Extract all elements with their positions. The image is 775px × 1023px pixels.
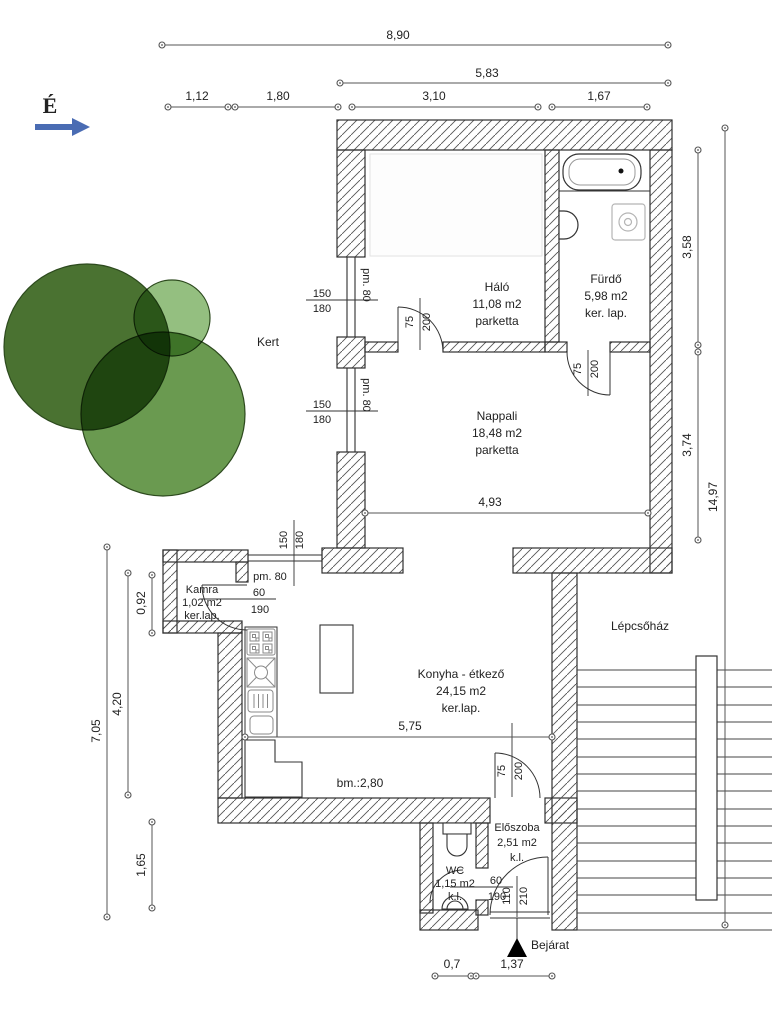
svg-text:ker. lap.: ker. lap. [585, 306, 627, 320]
svg-text:150: 150 [313, 399, 331, 411]
wall-mid-c [545, 342, 567, 352]
dim-bottom-seg1: 0,7 [444, 957, 461, 971]
svg-text:parketta: parketta [475, 443, 519, 457]
wall-foot-right [513, 548, 672, 573]
svg-text:75: 75 [404, 316, 416, 328]
svg-text:k.l.: k.l. [448, 891, 462, 903]
wall-staircase [552, 573, 577, 930]
tree-mid [81, 332, 245, 496]
room-label-wc: WC 1,15 m2 k.l. [435, 865, 475, 903]
window-label-halo: 150 180 pm. 80 [306, 268, 378, 315]
svg-text:180: 180 [294, 531, 306, 549]
wall-bath-divider [545, 150, 559, 342]
dim-left-konyha: 4,20 [110, 692, 124, 716]
svg-text:5,98 m2: 5,98 m2 [584, 289, 628, 303]
stove-icon [247, 629, 275, 655]
wall-kamra-top [163, 550, 248, 562]
svg-text:110: 110 [501, 887, 513, 905]
dim-left-total: 7,05 [89, 719, 103, 743]
svg-text:24,15 m2: 24,15 m2 [436, 684, 486, 698]
toilet-icon [443, 823, 471, 856]
washbasin-icon [559, 211, 578, 239]
svg-text:WC: WC [446, 865, 464, 877]
svg-text:pm. 80: pm. 80 [253, 571, 287, 583]
dim-konyha-note: bm.:2,80 [337, 776, 384, 790]
dim-right-furdo: 3,58 [680, 235, 694, 259]
dim-right-nappali: 3,74 [680, 433, 694, 457]
svg-text:parketta: parketta [475, 314, 519, 328]
dim-left-kamra: 0,92 [134, 591, 148, 615]
svg-text:ker.lap.: ker.lap. [184, 610, 219, 622]
svg-text:Háló: Háló [485, 280, 510, 294]
dishwasher-icon [248, 690, 273, 712]
door-label-entrance: 110 210 [501, 876, 530, 917]
svg-text:150: 150 [313, 288, 331, 300]
door-label-halo: 75 200 [404, 298, 433, 350]
dim-top-seg3: 3,10 [422, 89, 446, 103]
svg-text:150: 150 [278, 531, 290, 549]
door-label-furdo: 75 200 [572, 350, 601, 396]
room-label-kamra: Kamra 1,02 m2 ker.lap. [182, 584, 222, 622]
svg-text:2,51 m2: 2,51 m2 [497, 837, 537, 849]
dim-top-total: 8,90 [386, 28, 410, 42]
dim-top-seg2: 1,80 [266, 89, 290, 103]
garden-label: Kert [257, 335, 280, 349]
svg-text:75: 75 [496, 765, 508, 777]
dim-top-seg4: 1,67 [587, 89, 611, 103]
dim-bottom-seg2: 1,37 [500, 957, 524, 971]
wall-mid-a [365, 342, 398, 352]
window-label-kitchen: 150 180 pm. 80 [253, 520, 306, 586]
wall-foot-left [322, 548, 403, 573]
svg-text:75: 75 [572, 363, 584, 375]
svg-text:200: 200 [589, 360, 601, 378]
wall-left-mid [337, 337, 365, 368]
dim-top-seg1: 1,12 [185, 89, 209, 103]
floorplan-page: Kert É [0, 0, 775, 1023]
svg-text:Előszoba: Előszoba [494, 822, 540, 834]
compass-arrow-icon [35, 118, 90, 136]
svg-text:Fürdő: Fürdő [590, 272, 622, 286]
wall-kitchen-bottom [218, 798, 490, 823]
wall-right [650, 150, 672, 573]
kitchen-counter [245, 627, 277, 737]
dim-top-wing: 5,83 [475, 66, 499, 80]
svg-text:k.l.: k.l. [510, 852, 524, 864]
wall-wc-hall-bottom [476, 900, 488, 915]
bathtub-drain [619, 169, 624, 174]
wall-top [337, 120, 672, 150]
staircase [577, 656, 772, 930]
wall-kitchen-left [218, 633, 242, 798]
svg-text:ker.lap.: ker.lap. [442, 701, 481, 715]
door-label-konyha: 75 200 [496, 723, 525, 797]
svg-text:200: 200 [513, 762, 525, 780]
svg-text:Konyha - étkező: Konyha - étkező [418, 667, 505, 681]
room-label-furdo: Fürdő 5,98 m2 ker. lap. [584, 272, 628, 320]
dim-nappali-width: 4,93 [478, 495, 502, 509]
compass: É [35, 93, 90, 136]
bed [370, 154, 542, 256]
dim-konyha-width: 5,75 [398, 719, 422, 733]
bathtub-inner [569, 159, 635, 185]
room-label-konyha: Konyha - étkező 24,15 m2 ker.lap. [418, 667, 505, 715]
washing-machine-icon [612, 204, 645, 240]
svg-text:60: 60 [490, 875, 502, 887]
svg-text:18,48 m2: 18,48 m2 [472, 426, 522, 440]
dim-right-total: 14,97 [706, 482, 720, 512]
counter-l-shape [245, 740, 302, 797]
entrance-label: Bejárat [531, 938, 570, 952]
svg-text:190: 190 [251, 604, 269, 616]
room-label-halo: Háló 11,08 m2 parketta [472, 280, 521, 328]
svg-text:Nappali: Nappali [477, 409, 518, 423]
wall-mid-b [443, 342, 545, 352]
svg-text:1,15 m2: 1,15 m2 [435, 878, 475, 890]
stair-rail [696, 656, 717, 900]
svg-text:60: 60 [253, 587, 265, 599]
svg-text:pm. 80: pm. 80 [360, 268, 372, 302]
svg-text:210: 210 [518, 887, 530, 905]
sink-icon [247, 658, 275, 687]
svg-text:180: 180 [313, 414, 331, 426]
kitchen-island [320, 625, 353, 693]
wall-wc-hall-top [476, 823, 488, 868]
fridge-icon [250, 716, 273, 734]
garden-trees [4, 264, 245, 496]
wall-left-top [337, 150, 365, 257]
dim-left-wc: 1,65 [134, 853, 148, 877]
entrance-triangle-icon [507, 938, 527, 957]
wall-left-low [337, 452, 365, 548]
svg-text:Kamra: Kamra [186, 584, 219, 596]
wall-mid-d [610, 342, 650, 352]
wall-kamra-right-stub [236, 562, 248, 582]
svg-text:pm. 80: pm. 80 [360, 378, 372, 412]
svg-text:200: 200 [421, 313, 433, 331]
compass-north-label: É [43, 93, 58, 118]
floorplan-drawing: Kert É [0, 0, 775, 1023]
svg-text:11,08 m2: 11,08 m2 [472, 297, 521, 311]
wall-wc-left [420, 823, 433, 913]
wall-wc-bottom [420, 910, 478, 930]
room-label-nappali: Nappali 18,48 m2 parketta [472, 409, 522, 457]
window-label-nappali: 150 180 pm. 80 [306, 378, 378, 426]
room-label-eloszoba: Előszoba 2,51 m2 k.l. [494, 822, 540, 864]
staircase-label: Lépcsőház [611, 619, 669, 633]
svg-text:180: 180 [313, 303, 331, 315]
